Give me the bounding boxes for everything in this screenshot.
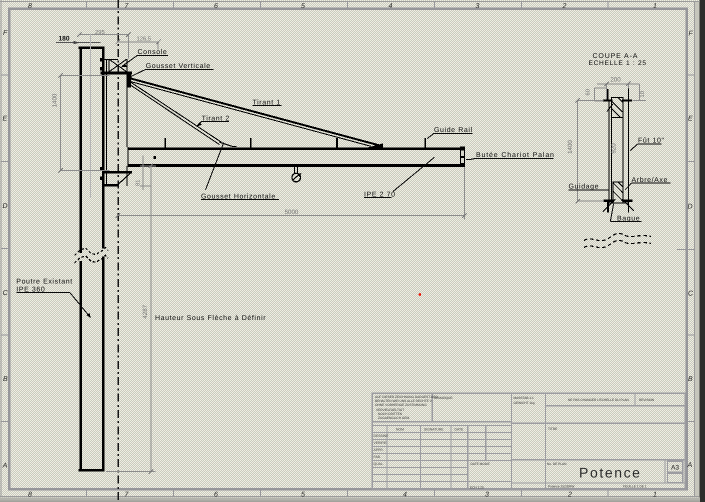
svg-text:3: 3	[476, 3, 480, 10]
svg-text:GEWICHT 1kg: GEWICHT 1kg	[514, 401, 535, 405]
svg-text:D: D	[688, 204, 693, 211]
svg-text:A: A	[687, 462, 693, 469]
svg-text:FEUILLE 1 DE 1: FEUILLE 1 DE 1	[623, 485, 647, 489]
svg-text:ECHELLE 1 : 25: ECHELLE 1 : 25	[589, 60, 647, 67]
svg-text:B: B	[3, 376, 8, 383]
svg-text:REMARQUE:: REMARQUE:	[434, 396, 453, 400]
svg-text:Poutre Existant: Poutre Existant	[16, 278, 72, 286]
svg-text:APPR.: APPR.	[374, 448, 384, 452]
svg-text:REVISION: REVISION	[639, 398, 655, 402]
svg-text:4: 4	[389, 3, 393, 10]
svg-text:DATE MODIF: DATE MODIF	[471, 462, 490, 466]
svg-text:SIGNATURE: SIGNATURE	[424, 428, 444, 432]
svg-text:81: 81	[136, 180, 142, 186]
svg-text:A: A	[2, 463, 8, 470]
svg-text:ZUGAENGLICH GEM.: ZUGAENGLICH GEM.	[378, 416, 410, 420]
svg-text:MASSTAB 1:1: MASSTAB 1:1	[514, 396, 535, 400]
svg-text:VERIFIE: VERIFIE	[374, 441, 388, 445]
svg-text:1400: 1400	[52, 93, 59, 107]
svg-text:QUAL.: QUAL.	[374, 462, 384, 466]
svg-text:A3: A3	[671, 465, 679, 472]
svg-text:4: 4	[403, 492, 407, 499]
svg-text:NE PAS CHANGER L'ECHELLE DU PL: NE PAS CHANGER L'ECHELLE DU PLAN	[568, 398, 629, 402]
svg-text:F: F	[3, 30, 8, 37]
svg-text:ECH 1:25: ECH 1:25	[470, 486, 484, 490]
svg-text:180: 180	[59, 35, 70, 42]
svg-text:5: 5	[301, 3, 305, 10]
svg-text:10: 10	[640, 91, 646, 97]
svg-text:295: 295	[95, 29, 105, 36]
svg-text:1: 1	[653, 3, 657, 10]
svg-text:5000: 5000	[285, 209, 299, 216]
svg-text:No. DE PLAN: No. DE PLAN	[547, 462, 567, 466]
svg-text:1400: 1400	[567, 140, 574, 154]
svg-text:200: 200	[610, 77, 621, 84]
svg-text:920: 920	[611, 143, 618, 154]
svg-text:OHNE VORHERIGE ZUSTIMMUNG: OHNE VORHERIGE ZUSTIMMUNG	[375, 403, 427, 407]
svg-text:3: 3	[485, 492, 489, 499]
svg-text:1: 1	[653, 492, 657, 499]
svg-text:DATE: DATE	[455, 428, 465, 432]
svg-text:NOM: NOM	[396, 428, 404, 432]
svg-text:2: 2	[562, 3, 567, 10]
svg-text:B: B	[688, 376, 693, 383]
svg-text:4287: 4287	[142, 304, 149, 318]
svg-text:E: E	[688, 116, 693, 123]
svg-text:5: 5	[301, 492, 305, 499]
svg-text:D: D	[3, 203, 8, 210]
svg-text:E: E	[3, 116, 8, 123]
svg-text:8: 8	[28, 492, 32, 499]
svg-text:60: 60	[586, 89, 592, 95]
svg-text:COUPE A-A: COUPE A-A	[593, 53, 639, 60]
svg-text:F: F	[689, 31, 694, 38]
svg-text:DESSINE: DESSINE	[374, 434, 390, 438]
svg-text:Potence.SLDDRW: Potence.SLDDRW	[548, 485, 574, 489]
svg-text:126,5: 126,5	[137, 36, 152, 43]
svg-text:FAB.: FAB.	[374, 455, 381, 459]
svg-text:6: 6	[214, 3, 218, 10]
svg-text:2: 2	[567, 492, 572, 499]
svg-text:6: 6	[214, 492, 218, 499]
svg-text:TITRE: TITRE	[548, 427, 557, 431]
svg-text:Hauteur Sous Flèche à Définir: Hauteur Sous Flèche à Définir	[155, 314, 266, 322]
svg-text:8: 8	[28, 3, 32, 10]
svg-text:Potence: Potence	[579, 465, 642, 481]
